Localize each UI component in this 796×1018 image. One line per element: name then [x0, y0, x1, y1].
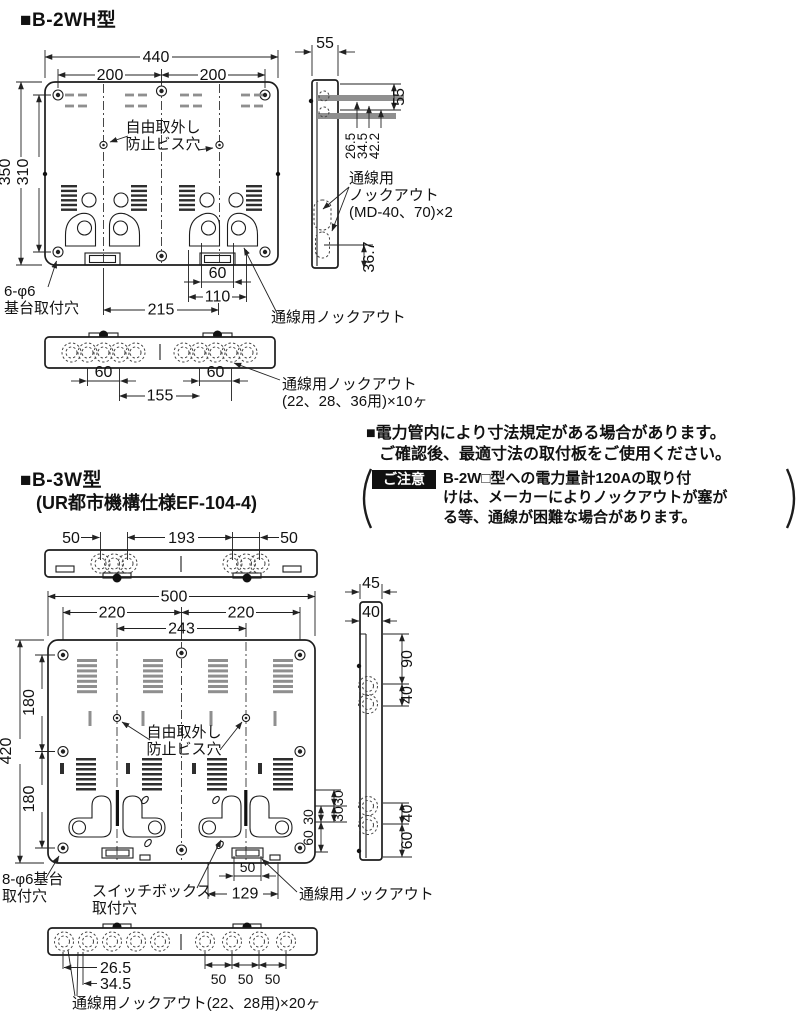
dim-55-vert: 55: [391, 88, 408, 106]
caution-badge: ご注意: [372, 470, 436, 489]
label-removal-1: 自由取外し: [125, 119, 200, 136]
dim-34-5-strip: 34.5: [100, 976, 131, 993]
dim-60: 60: [209, 265, 227, 282]
section-title-b3w: ■B-3W型: [20, 465, 102, 492]
dim-243: 243: [168, 621, 195, 638]
b3w-side-view: 45 40 90 40 40 60: [345, 575, 416, 860]
label-switchbox-1: スイッチボックス: [92, 883, 212, 900]
dim-90: 90: [399, 650, 416, 668]
label-knockout-b3w-strip: 通線用ノックアウト(22、28用)×20ヶ: [72, 995, 321, 1012]
dim-60-left: 60: [95, 364, 113, 381]
dim-180-upper: 180: [21, 689, 38, 716]
dimension-note: ■電力管内により寸法規定がある場合があります。 ご確認後、最適寸法の取付板をご使…: [366, 423, 731, 465]
dim-30-c: 30: [300, 809, 316, 825]
label-side-knockout-2: ノックアウト: [349, 187, 439, 204]
dim-60-right: 60: [207, 364, 225, 381]
b2wh-bottom-view: 60 60 155 通線用ノックアウト (22、28、36用)×10ヶ: [45, 331, 428, 411]
dim-50-strip-b: 50: [238, 971, 254, 987]
dim-193: 193: [168, 530, 195, 547]
label-removal-b3w-2: 防止ビス穴: [146, 741, 221, 758]
dim-440: 440: [143, 49, 170, 66]
label-knockout-front: 通線用ノックアウト: [271, 309, 406, 326]
dim-36-7: 36.7: [361, 241, 378, 272]
caution-line3: る等、通線が困難な場合があります。: [443, 508, 727, 527]
dimension-note-line1: ■電力管内により寸法規定がある場合があります。: [366, 423, 731, 444]
dim-55-width: 55: [316, 35, 334, 52]
dim-200-right: 200: [200, 67, 227, 84]
caution-text: B-2W□型への電力量計120Aの取り付 けは、メーカーによりノックアウトが塞が…: [443, 469, 727, 527]
dim-50-top-right: 50: [280, 530, 298, 547]
dim-215: 215: [148, 302, 175, 319]
caution-line1: B-2W□型への電力量計120Aの取り付: [443, 469, 727, 488]
label-base-hole-1: 6-φ6: [4, 283, 35, 300]
dim-42-2: 42.2: [367, 133, 382, 159]
caution-line2: けは、メーカーによりノックアウトが塞が: [443, 488, 727, 507]
dim-40-lower: 40: [399, 805, 416, 823]
dim-50-strip-c: 50: [265, 971, 281, 987]
dim-129: 129: [232, 886, 259, 903]
dim-200-left: 200: [97, 67, 124, 84]
dim-500: 500: [161, 589, 188, 606]
b3w-front-view: 自由取外し 防止ビス穴: [48, 640, 315, 863]
dim-50-top-left: 50: [62, 530, 80, 547]
label-base-hole-2: 基台取付穴: [4, 300, 79, 317]
b3w-bottom-view: 26.5 34.5 50 50 50 通線用ノックアウト(22、28用)×20ヶ: [48, 923, 321, 1013]
label-base-hole-b3w-1: 8-φ6基台: [2, 871, 63, 888]
dim-30-b: 30: [330, 806, 346, 822]
dim-26-5-strip: 26.5: [100, 960, 131, 977]
b2wh-side-view: 55 26.5 34.5 42.2 55 通線用 ノックアウト (MD-40、7…: [295, 35, 453, 273]
dimension-note-line2: ご確認後、最適寸法の取付板をご使用ください。: [366, 444, 731, 465]
dim-155: 155: [147, 388, 174, 405]
label-strip-knockout-2: (22、28、36用)×10ヶ: [282, 393, 428, 410]
label-side-knockout-1: 通線用: [349, 170, 394, 187]
label-removal-b3w-1: 自由取外し: [146, 724, 221, 741]
section-title-b2wh: ■B-2WH型: [20, 5, 116, 32]
catalog-page: 自由取外し 防止ビス穴 440 200 200 350 310 60 110 2…: [0, 0, 796, 1018]
b3w-top-view: 50 193 50: [45, 530, 317, 583]
dim-350: 350: [0, 159, 14, 186]
dim-40-upper: 40: [399, 686, 416, 704]
dim-50-keyhole: 50: [240, 859, 256, 875]
dim-50-strip-a: 50: [211, 971, 227, 987]
label-base-hole-b3w-2: 取付穴: [2, 888, 47, 905]
dim-180-lower: 180: [21, 786, 38, 813]
label-side-knockout-3: (MD-40、70)×2: [349, 204, 453, 221]
dim-45: 45: [362, 575, 380, 592]
label-removal-2: 防止ビス穴: [125, 136, 200, 153]
dim-220-right: 220: [228, 605, 255, 622]
label-knockout-b3w-front: 通線用ノックアウト: [299, 886, 434, 903]
dim-310: 310: [15, 159, 32, 186]
dim-40-top: 40: [362, 604, 380, 621]
dim-110: 110: [205, 289, 231, 306]
dim-220-left: 220: [99, 605, 126, 622]
section-subtitle-b3w: (UR都市機構仕様EF-104-4): [36, 489, 257, 515]
dim-60-side: 60: [399, 832, 416, 850]
b2wh-front-view: 自由取外し 防止ビス穴: [43, 82, 280, 265]
dim-420: 420: [0, 738, 15, 765]
label-strip-knockout-1: 通線用ノックアウト: [282, 376, 417, 393]
dim-30-a: 30: [330, 790, 346, 806]
dim-60-right-chain: 60: [300, 830, 316, 846]
label-switchbox-2: 取付穴: [92, 900, 137, 917]
